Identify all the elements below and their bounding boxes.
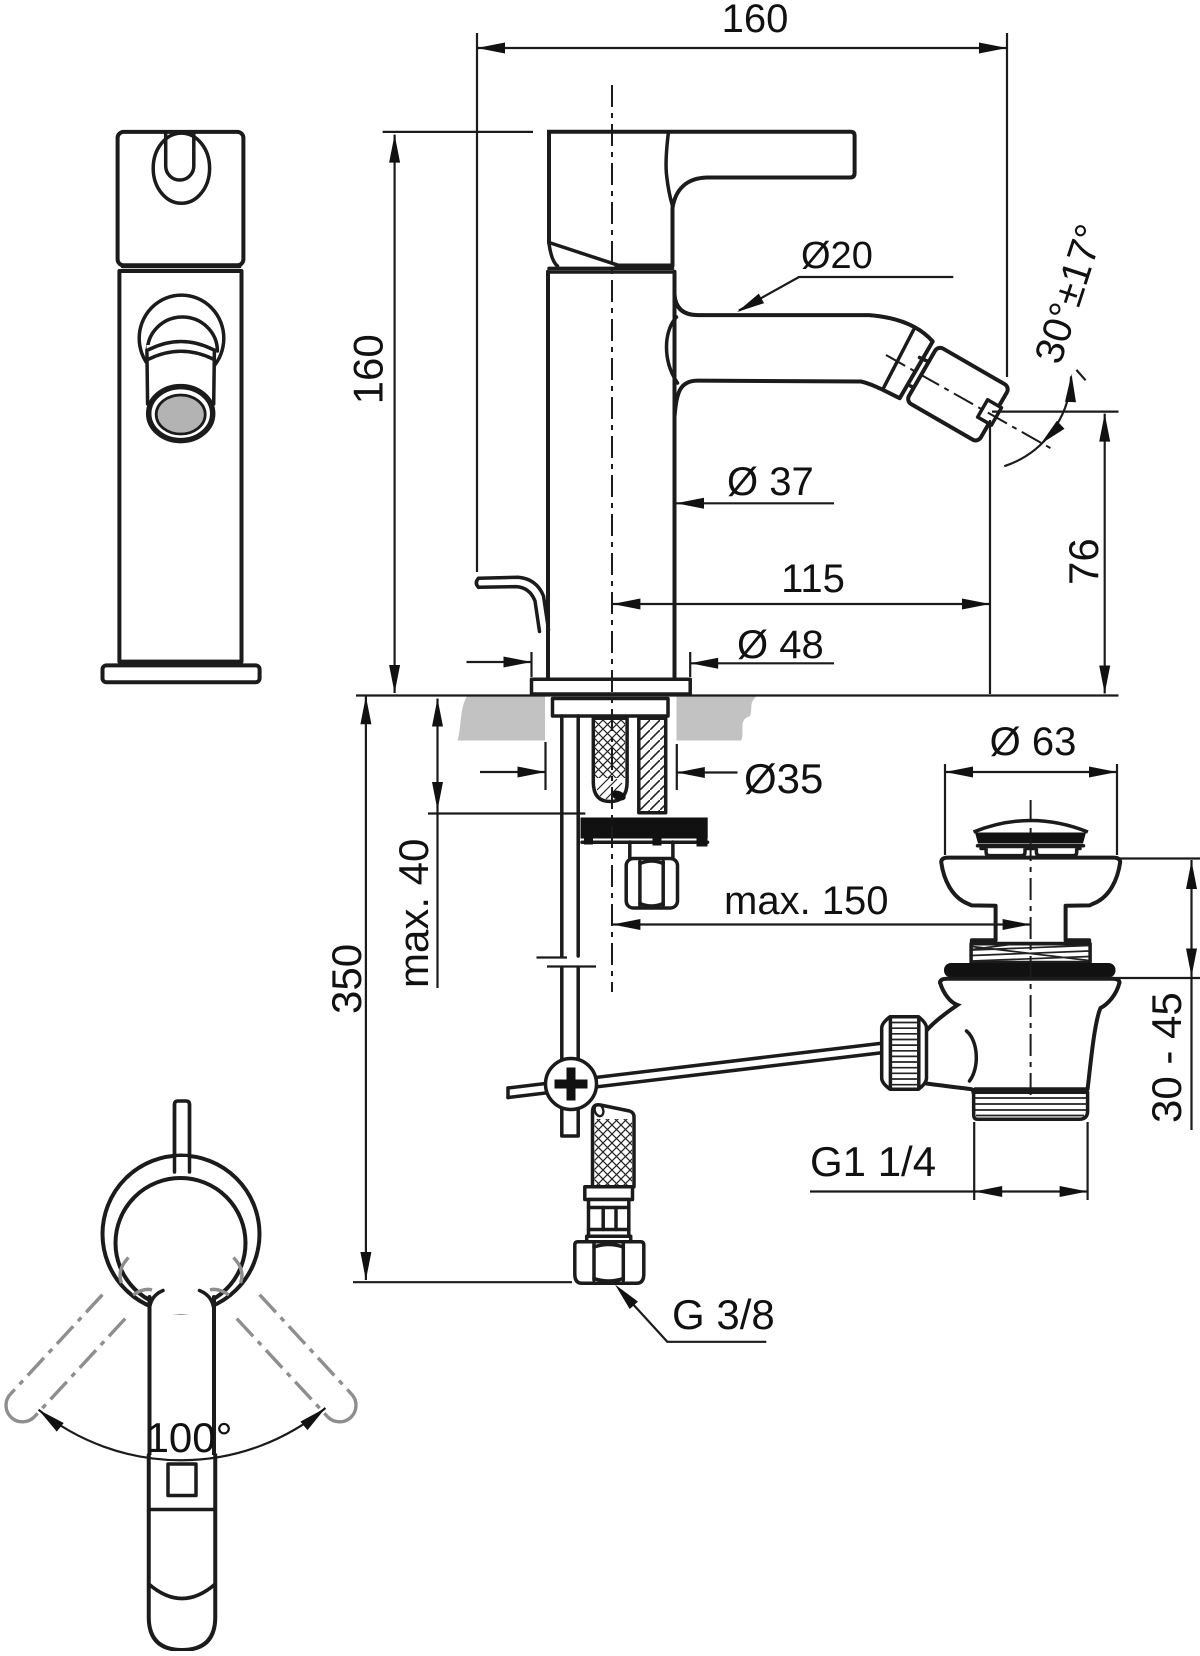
svg-text:Ø 37: Ø 37 <box>727 460 814 504</box>
svg-text:max. 40: max. 40 <box>390 839 437 988</box>
svg-text:100°: 100° <box>146 1414 233 1461</box>
svg-text:160: 160 <box>345 334 392 404</box>
svg-text:Ø 48: Ø 48 <box>737 623 824 667</box>
svg-text:G1 1/4: G1 1/4 <box>810 1138 936 1185</box>
svg-text:76: 76 <box>1060 538 1107 585</box>
svg-text:350: 350 <box>323 944 370 1014</box>
svg-text:Ø35: Ø35 <box>744 755 823 802</box>
svg-text:30 - 45: 30 - 45 <box>1143 992 1190 1123</box>
svg-text:Ø20: Ø20 <box>801 235 873 277</box>
svg-text:max. 150: max. 150 <box>724 879 889 923</box>
svg-text:Ø 63: Ø 63 <box>990 720 1077 764</box>
svg-text:G 3/8: G 3/8 <box>672 1291 775 1338</box>
svg-text:160: 160 <box>722 0 789 41</box>
svg-text:115: 115 <box>781 557 845 601</box>
